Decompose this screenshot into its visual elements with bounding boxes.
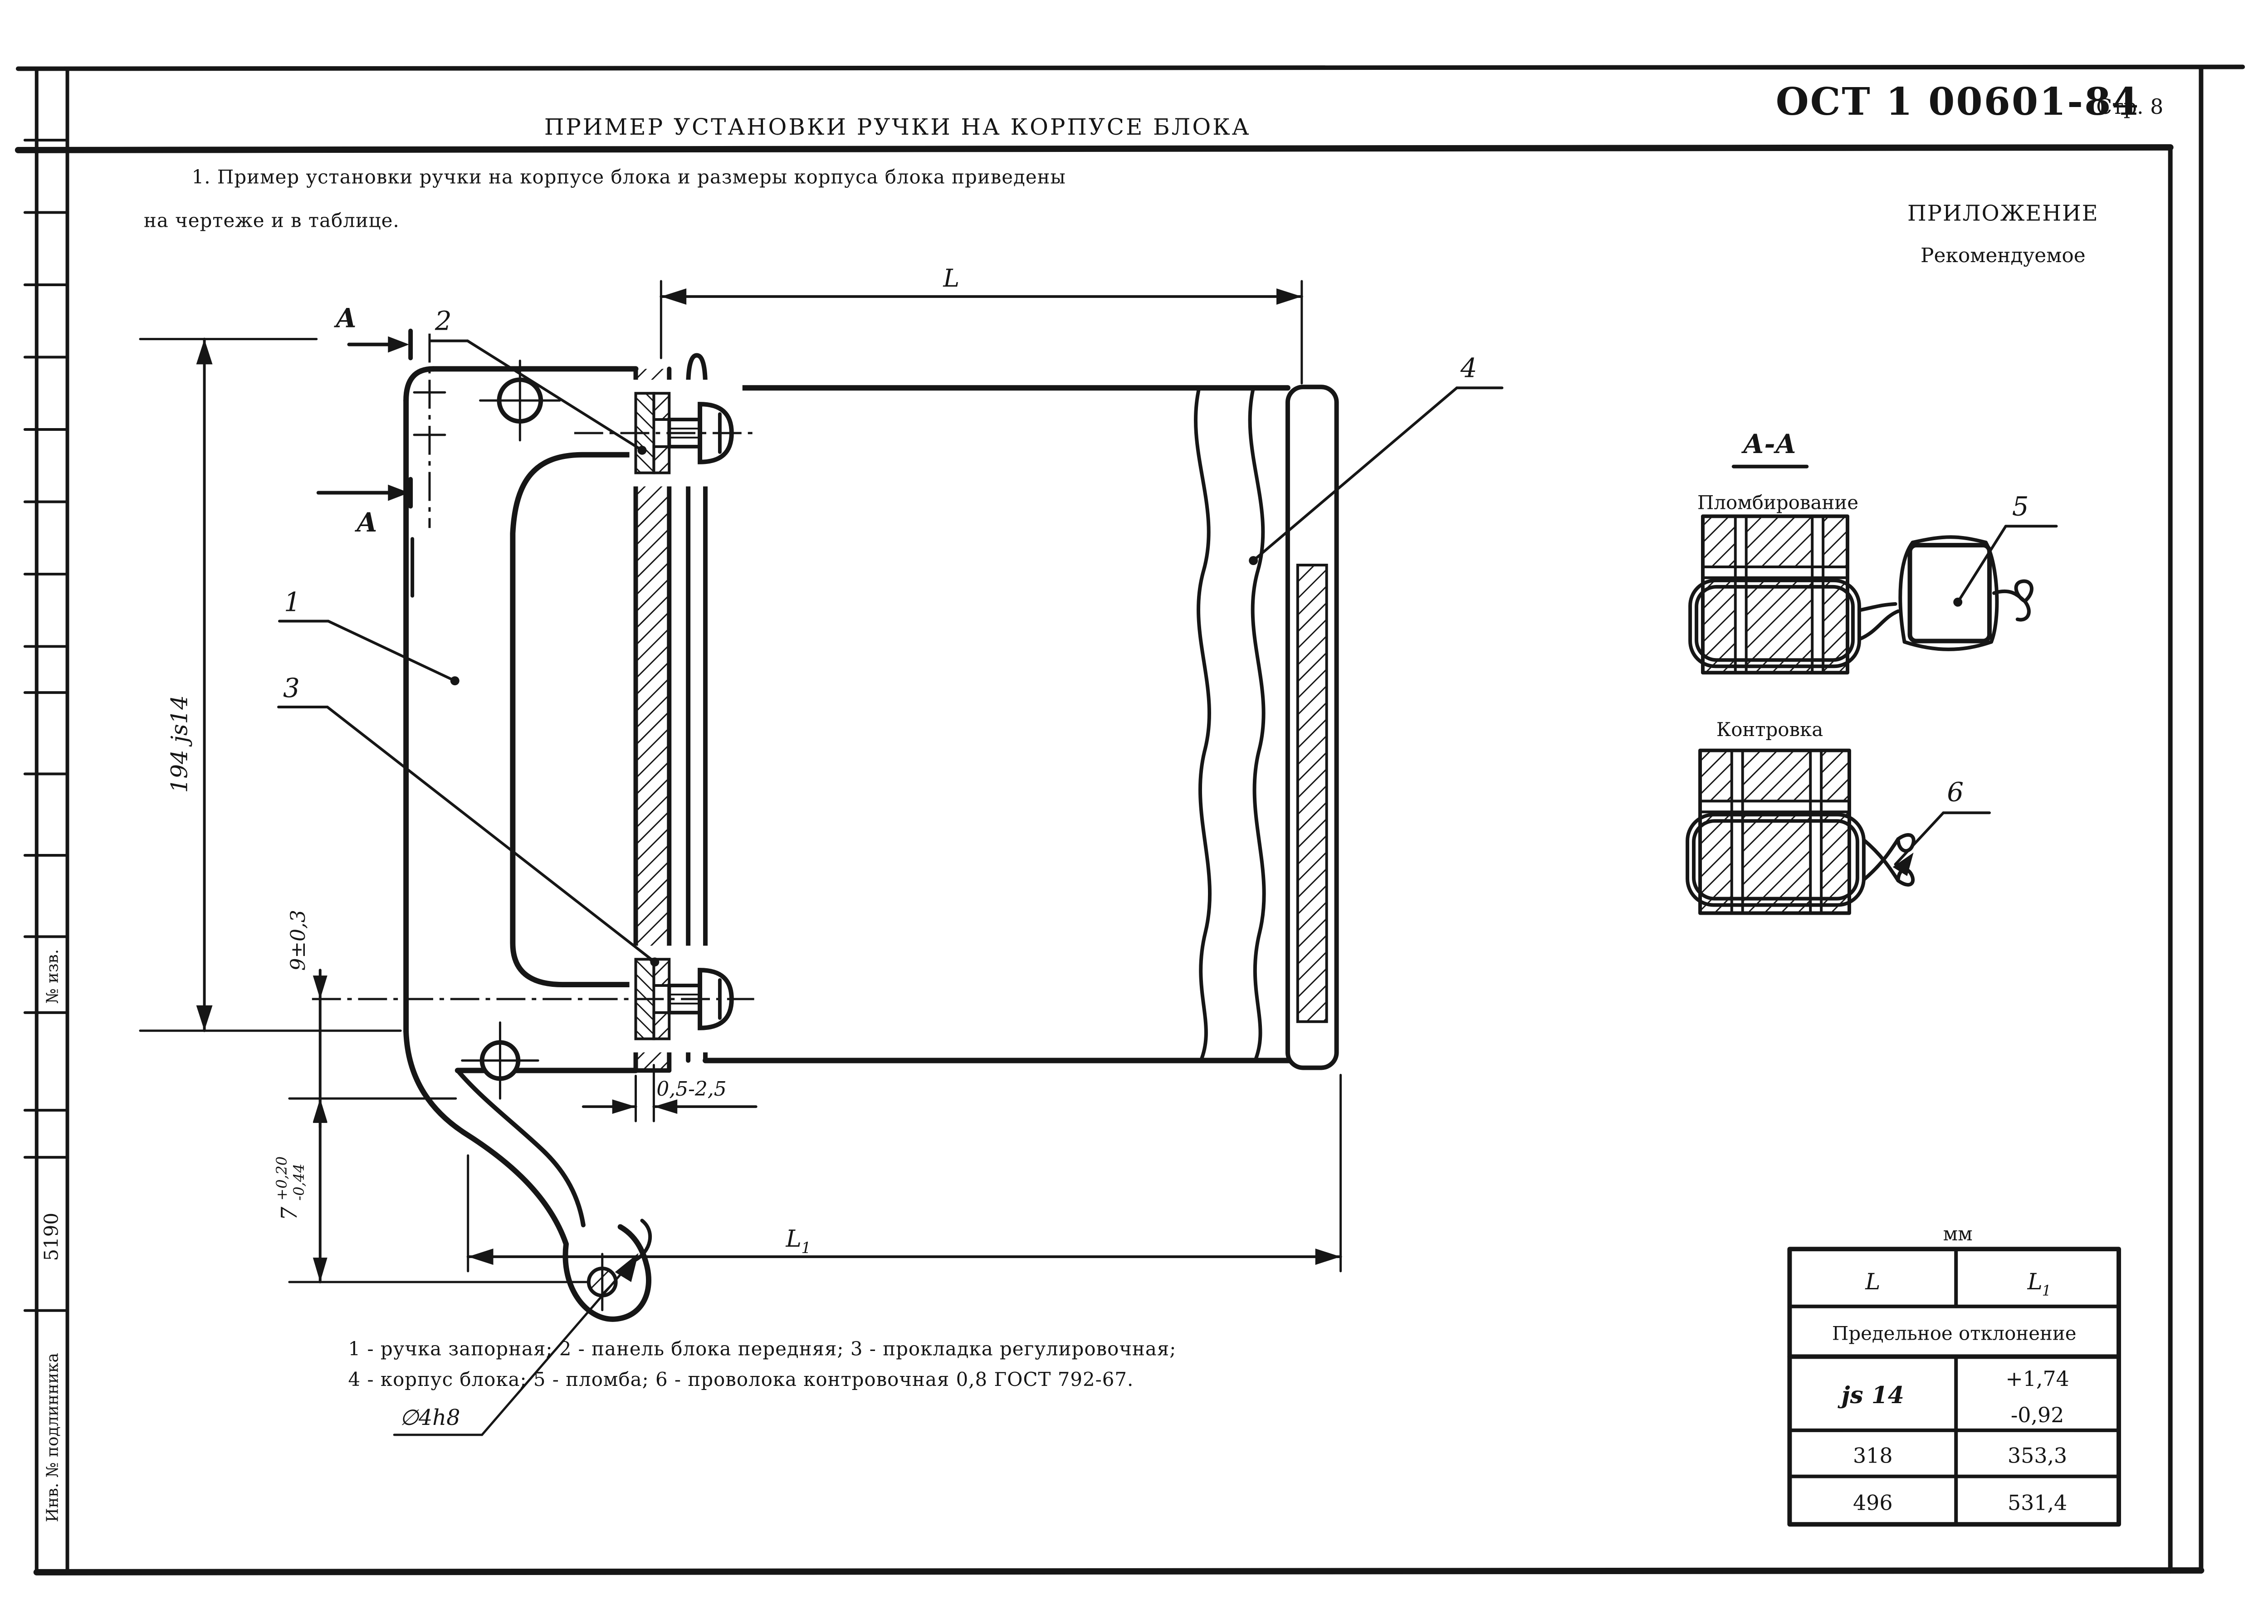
section-view-label: А-А <box>1741 429 1796 459</box>
dim-L1-sub: 1 <box>801 1239 811 1257</box>
appendix-type: Рекомендуемое <box>1921 244 2086 267</box>
table-span-header: Предельное отклонение <box>1832 1322 2077 1345</box>
block-body <box>705 387 1337 1068</box>
locking-figure: 6 <box>1687 751 1989 913</box>
sealing-figure: 5 <box>1690 491 2056 673</box>
break-line-right <box>1250 388 1264 1060</box>
table-fit: js 14 <box>1838 1381 1904 1409</box>
break-line-left <box>1196 388 1210 1060</box>
table-col-L1: L <box>2027 1268 2043 1295</box>
appendix-label: ПРИЛОЖЕНИЕ <box>1907 201 2099 226</box>
table-r2c1: 318 <box>1853 1444 1893 1468</box>
dim-9-label: 9±0,3 <box>287 910 310 970</box>
seal-wire-tail <box>1994 581 2032 620</box>
table-dev-plus: +1,74 <box>2005 1366 2069 1391</box>
dim-gap-label: 0,5-2,5 <box>656 1078 726 1101</box>
section-view-aa: А-А Пломбирование 5 <box>1687 429 2056 913</box>
margin-stamp-inv: Инв. № подлинника <box>44 1353 62 1522</box>
dim-7-label: 7 <box>277 1206 302 1220</box>
section-letter-top: А <box>334 303 357 334</box>
intro-line2: на чертеже и в таблице. <box>144 209 400 231</box>
legend-line1: 1 - ручка запорная; 2 - панель блока пер… <box>348 1337 1177 1360</box>
callout-4: 4 <box>1460 352 1477 383</box>
dim-194: 194 js14 <box>140 339 401 1031</box>
locking-handle <box>406 361 650 1319</box>
intro-line1: 1. Пример установки ручки на корпусе бло… <box>192 166 1066 188</box>
section-marks: А А <box>318 303 445 538</box>
doc-number: ОСТ 1 00601-84 <box>1776 79 2140 124</box>
dim-7: 7 +0,20 -0,44 <box>273 1098 588 1282</box>
dim-hole-label: ∅4h8 <box>400 1405 460 1430</box>
legend-line2: 4 - корпус блока; 5 - пломба; 6 - провол… <box>348 1368 1134 1390</box>
handle-hook-inner <box>458 1070 583 1225</box>
page-number: Стр. 8 <box>2096 94 2163 119</box>
section-letter-bottom: А <box>354 507 377 538</box>
dim-L1-bottom: L 1 <box>468 1075 1341 1271</box>
margin-cell-dividers <box>25 140 68 1311</box>
locking-label: Контровка <box>1716 718 1823 741</box>
dim-gap: 0,5-2,5 <box>583 1065 756 1121</box>
table-units: мм <box>1943 1223 1973 1245</box>
dim-L-top: L <box>661 264 1301 383</box>
callout-6: 6 <box>1947 776 1964 807</box>
main-view: А А <box>140 264 1502 1435</box>
dim-L1-label: L <box>785 1225 801 1253</box>
dim-7-plus: +0,20 <box>273 1156 290 1201</box>
callout-3: 3 <box>283 673 300 703</box>
screw-bottom <box>312 946 754 1052</box>
table-dev-minus: -0,92 <box>2011 1403 2064 1427</box>
dim-194-label: 194 js14 <box>166 695 193 793</box>
margin-stamp-izv: № изв. <box>44 949 62 1004</box>
dimension-table: мм L L 1 Предельное отклонение js 14 +1,… <box>1789 1223 2119 1524</box>
table-r2c2: 353,3 <box>2008 1444 2067 1468</box>
callout-1: 1 <box>284 587 301 618</box>
table-col-L: L <box>1865 1268 1880 1295</box>
page-title: ПРИМЕР УСТАНОВКИ РУЧКИ НА КОРПУСЕ БЛОКА <box>544 114 1251 140</box>
dim-7-minus: -0,44 <box>290 1164 308 1201</box>
table-r3c1: 496 <box>1853 1490 1893 1515</box>
callout-2: 2 <box>435 306 452 337</box>
legend: 1 - ручка запорная; 2 - панель блока пер… <box>348 1337 1177 1390</box>
margin-stamp-code: 5190 <box>40 1213 63 1261</box>
table-col-L1-sub: 1 <box>2042 1282 2051 1299</box>
screw-top <box>574 380 754 486</box>
dim-L-label: L <box>943 264 959 293</box>
dim-9: 9±0,3 <box>287 910 456 1127</box>
callout-5: 5 <box>2012 491 2029 522</box>
seal-body <box>1910 545 1989 641</box>
block-back-plate-hatch <box>1298 565 1327 1022</box>
header: ОСТ 1 00601-84 Стр. 8 ПРИЛОЖЕНИЕ Рекомен… <box>144 79 2163 267</box>
ost-standard-sheet: № изв. 5190 Инв. № подлинника ОСТ 1 0060… <box>0 0 2268 1619</box>
handle-grip-cutout <box>513 455 635 985</box>
sealing-label: Пломбирование <box>1697 491 1858 513</box>
table-r3c2: 531,4 <box>2008 1490 2067 1515</box>
